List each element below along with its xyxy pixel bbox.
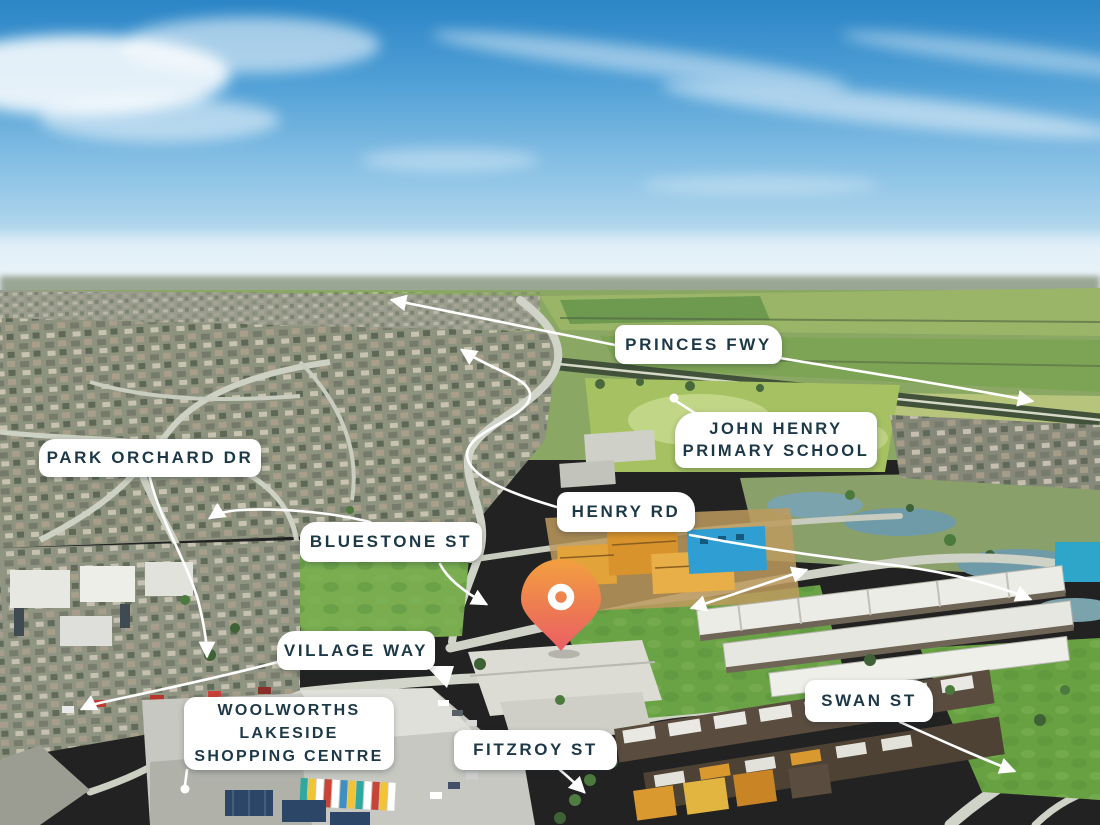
label-henry-rd: HENRY RD — [557, 492, 695, 532]
aerial-locality-map: PRINCES FWY JOHN HENRY PRIMARY SCHOOL PA… — [0, 0, 1100, 825]
woolworths-pointer-dot — [181, 785, 190, 794]
label-bluestone-st: BLUESTONE ST — [300, 522, 482, 562]
label-text: PARK ORCHARD DR — [47, 446, 254, 470]
aerial-photo-background — [0, 0, 1100, 825]
label-text: PRINCES FWY — [625, 333, 772, 357]
school-pointer-dot — [670, 394, 679, 403]
label-woolworths-lakeside-shopping-centre: WOOLWORTHS LAKESIDE SHOPPING CENTRE — [184, 697, 394, 770]
sky — [0, 0, 1100, 320]
label-princes-fwy: PRINCES FWY — [615, 325, 782, 364]
label-text-line3: SHOPPING CENTRE — [194, 745, 383, 768]
label-text: SWAN ST — [821, 689, 917, 713]
label-text: HENRY RD — [572, 500, 681, 524]
label-john-henry-primary-school: JOHN HENRY PRIMARY SCHOOL — [675, 412, 877, 468]
label-text: BLUESTONE ST — [310, 530, 472, 554]
fitzroy-st-arrow — [560, 770, 584, 792]
label-village-way: VILLAGE WAY — [277, 631, 435, 670]
label-text-line2: LAKESIDE — [239, 722, 338, 745]
label-text-line1: JOHN HENRY — [709, 418, 843, 440]
label-text-line1: WOOLWORTHS — [218, 699, 361, 722]
label-park-orchard-dr: PARK ORCHARD DR — [39, 439, 261, 477]
label-text: VILLAGE WAY — [284, 639, 428, 663]
label-fitzroy-st: FITZROY ST — [454, 730, 617, 770]
label-swan-st: SWAN ST — [805, 680, 933, 722]
label-text-line2: PRIMARY SCHOOL — [683, 440, 870, 462]
suburb-right — [890, 415, 1100, 490]
label-text: FITZROY ST — [473, 738, 598, 762]
